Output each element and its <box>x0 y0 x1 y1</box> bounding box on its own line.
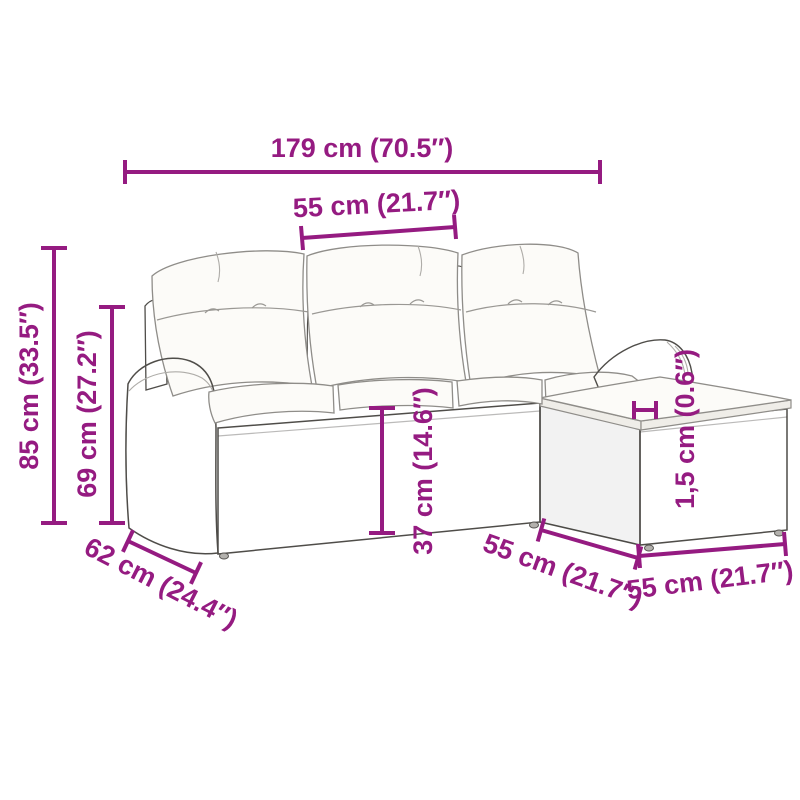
seat-cushion-1 <box>209 383 334 423</box>
seat-cushion-3 <box>457 377 542 406</box>
dim-cushion-thickness-label: 1,5 cm (0.6″) <box>670 349 700 509</box>
dim-seat-width: 55 cm (21.7″) <box>292 185 461 250</box>
dim-overall-width: 179 cm (70.5″) <box>125 133 600 184</box>
back-cushion-2 <box>307 245 466 389</box>
back-cushion-1 <box>152 251 312 396</box>
back-cushion-3 <box>462 244 600 387</box>
dim-footstool-width-label: 55 cm (21.7″) <box>625 555 795 605</box>
dim-seat-width-label: 55 cm (21.7″) <box>292 185 461 224</box>
dim-seat-height: 37 cm (14.6″) <box>369 387 438 555</box>
sofa-dimension-diagram: 179 cm (70.5″) 55 cm (21.7″) 85 cm (33.5… <box>0 0 800 800</box>
dim-overall-height: 85 cm (33.5″) <box>14 248 67 523</box>
dim-seat-height-label: 37 cm (14.6″) <box>408 387 438 555</box>
dimension-diagram-page: 179 cm (70.5″) 55 cm (21.7″) 85 cm (33.5… <box>0 0 800 800</box>
dim-armrest-height: 69 cm (27.2″) <box>72 307 125 523</box>
dim-footstool-width: 55 cm (21.7″) <box>625 532 795 605</box>
dim-armrest-height-label: 69 cm (27.2″) <box>72 330 102 498</box>
dim-overall-width-label: 179 cm (70.5″) <box>271 133 454 163</box>
dim-overall-height-label: 85 cm (33.5″) <box>14 302 44 470</box>
